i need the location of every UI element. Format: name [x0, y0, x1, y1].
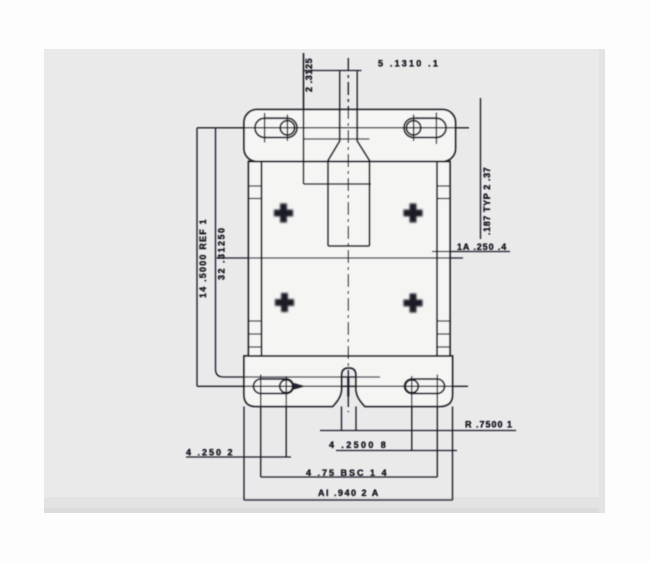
svg-text:5 .1310 .1: 5 .1310 .1	[378, 59, 440, 69]
svg-text:2 .3125: 2 .3125	[304, 58, 314, 92]
svg-text:14 .5000 REF 1: 14 .5000 REF 1	[198, 218, 208, 298]
svg-text:.187 TYP 2 .37: .187 TYP 2 .37	[482, 167, 492, 235]
svg-text:4 .250 2: 4 .250 2	[186, 448, 235, 458]
svg-text:R .7500 1: R .7500 1	[465, 420, 513, 430]
svg-text:4 .2500 8: 4 .2500 8	[329, 440, 388, 450]
svg-text:1A .250 .4: 1A .250 .4	[457, 242, 507, 252]
svg-text:AI .940 2 A: AI .940 2 A	[318, 488, 380, 498]
svg-text:32 .31250: 32 .31250	[217, 226, 227, 280]
svg-text:4 .75 BSC 1 4: 4 .75 BSC 1 4	[306, 468, 389, 478]
